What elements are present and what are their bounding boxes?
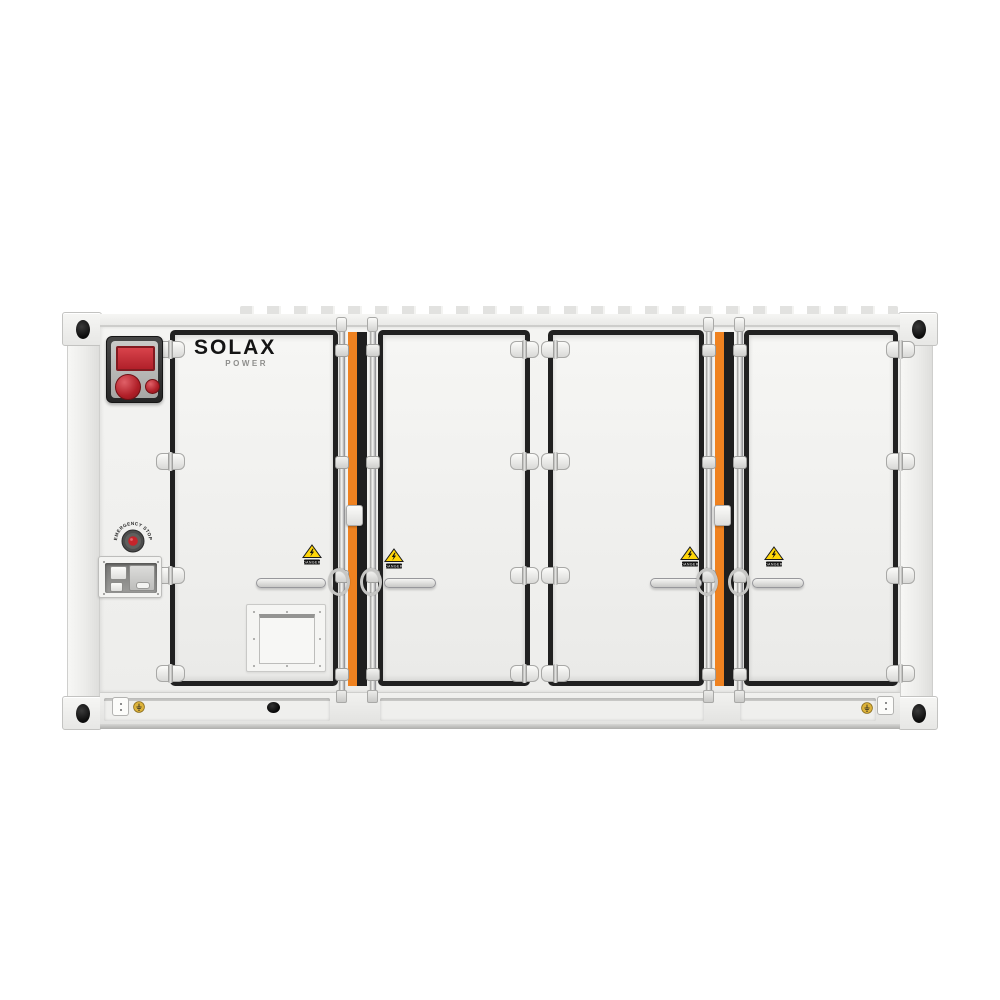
svg-text:DANGER: DANGER bbox=[681, 562, 699, 566]
door-handle-yoke bbox=[728, 568, 750, 596]
hinge bbox=[886, 453, 915, 470]
corner-casting-bottom-right bbox=[898, 696, 938, 730]
lock-rod bbox=[370, 318, 376, 702]
hinge bbox=[886, 567, 915, 584]
alarm-panel bbox=[106, 336, 163, 403]
rod-slider-block bbox=[714, 505, 731, 526]
rod-bracket bbox=[733, 344, 747, 357]
door-handle bbox=[752, 578, 804, 588]
hinge bbox=[156, 665, 185, 682]
hinge bbox=[886, 665, 915, 682]
corner-post-left bbox=[67, 312, 100, 728]
lock-rod bbox=[339, 318, 345, 702]
lock-rod bbox=[706, 318, 712, 702]
door-handle-yoke bbox=[696, 568, 718, 596]
hinge bbox=[541, 665, 570, 682]
service-socket-panel bbox=[98, 556, 162, 598]
rod-bracket bbox=[335, 456, 349, 469]
corner-hole-icon bbox=[912, 320, 926, 339]
svg-text:DANGER: DANGER bbox=[765, 562, 783, 566]
rod-bracket bbox=[366, 344, 380, 357]
lock-rod-foot bbox=[703, 690, 714, 703]
hinge bbox=[541, 453, 570, 470]
rocker-switch bbox=[110, 582, 123, 592]
alarm-display bbox=[116, 346, 155, 371]
product-image: DANGER DANGER DANGER DANGER EMERGENCY ST… bbox=[0, 0, 1000, 1000]
power-socket bbox=[112, 697, 129, 716]
ground-icon bbox=[861, 702, 873, 714]
rod-bracket bbox=[733, 456, 747, 469]
access-plate bbox=[246, 604, 326, 672]
lock-rod-hook bbox=[734, 317, 745, 332]
rod-bracket bbox=[702, 456, 716, 469]
door-panel-2 bbox=[378, 330, 530, 686]
corner-hole-icon bbox=[912, 704, 926, 723]
corner-casting-top-left bbox=[62, 312, 102, 346]
rod-bracket bbox=[366, 668, 380, 681]
door-panel-3 bbox=[548, 330, 704, 686]
hinge bbox=[510, 453, 539, 470]
access-plate-inner bbox=[259, 614, 315, 664]
danger-warning-icon: DANGER bbox=[384, 548, 404, 570]
lock-rod-foot bbox=[336, 690, 347, 703]
emergency-stop-button: EMERGENCY STOP bbox=[105, 503, 161, 557]
door-handle bbox=[384, 578, 436, 588]
vent-hole bbox=[267, 702, 280, 713]
hinge bbox=[541, 341, 570, 358]
top-rail bbox=[100, 314, 900, 327]
corner-casting-bottom-left bbox=[62, 696, 102, 730]
door-handle-yoke bbox=[360, 568, 382, 596]
alarm-button-small bbox=[145, 379, 160, 394]
rod-bracket bbox=[335, 344, 349, 357]
hinge bbox=[886, 341, 915, 358]
power-socket bbox=[877, 696, 894, 715]
socket-module bbox=[129, 565, 155, 591]
rod-bracket bbox=[733, 668, 747, 681]
alarm-button-large bbox=[115, 374, 141, 400]
rod-bracket bbox=[702, 344, 716, 357]
rod-bracket bbox=[702, 668, 716, 681]
lock-rod-foot bbox=[734, 690, 745, 703]
danger-warning-icon: DANGER bbox=[680, 546, 700, 568]
socket-recess bbox=[105, 563, 157, 593]
rod-slider-block bbox=[346, 505, 363, 526]
lock-rod-hook bbox=[336, 317, 347, 332]
corner-hole-icon bbox=[76, 320, 90, 339]
ground-icon bbox=[133, 701, 145, 713]
brand-wordmark-sub: POWER bbox=[194, 359, 268, 368]
svg-text:DANGER: DANGER bbox=[385, 564, 403, 568]
lock-rod bbox=[737, 318, 743, 702]
lock-rod-hook bbox=[703, 317, 714, 332]
door-handle-yoke bbox=[328, 568, 350, 596]
rod-bracket bbox=[366, 456, 380, 469]
brand-logo: SOLAX POWER bbox=[194, 337, 268, 368]
danger-warning-icon: DANGER bbox=[764, 546, 784, 568]
hinge bbox=[510, 341, 539, 358]
bottom-rail bbox=[100, 724, 900, 729]
hinge bbox=[541, 567, 570, 584]
door-handle bbox=[256, 578, 326, 588]
lock-rod-hook bbox=[367, 317, 378, 332]
alarm-panel-face bbox=[111, 341, 158, 398]
danger-warning-icon: DANGER bbox=[302, 544, 322, 566]
socket-slot bbox=[136, 582, 150, 589]
hinge bbox=[156, 453, 185, 470]
brand-wordmark: SOLAX bbox=[194, 337, 268, 358]
door-panel-4 bbox=[744, 330, 898, 686]
corner-hole-icon bbox=[76, 704, 90, 723]
rocker-switch bbox=[110, 566, 127, 580]
skirt-recess-panel bbox=[380, 698, 704, 721]
skirt-recess-panel bbox=[740, 698, 876, 721]
lock-rod-foot bbox=[367, 690, 378, 703]
hinge bbox=[510, 665, 539, 682]
rod-bracket bbox=[335, 668, 349, 681]
svg-text:DANGER: DANGER bbox=[303, 560, 321, 564]
door-handle bbox=[650, 578, 702, 588]
hinge bbox=[510, 567, 539, 584]
